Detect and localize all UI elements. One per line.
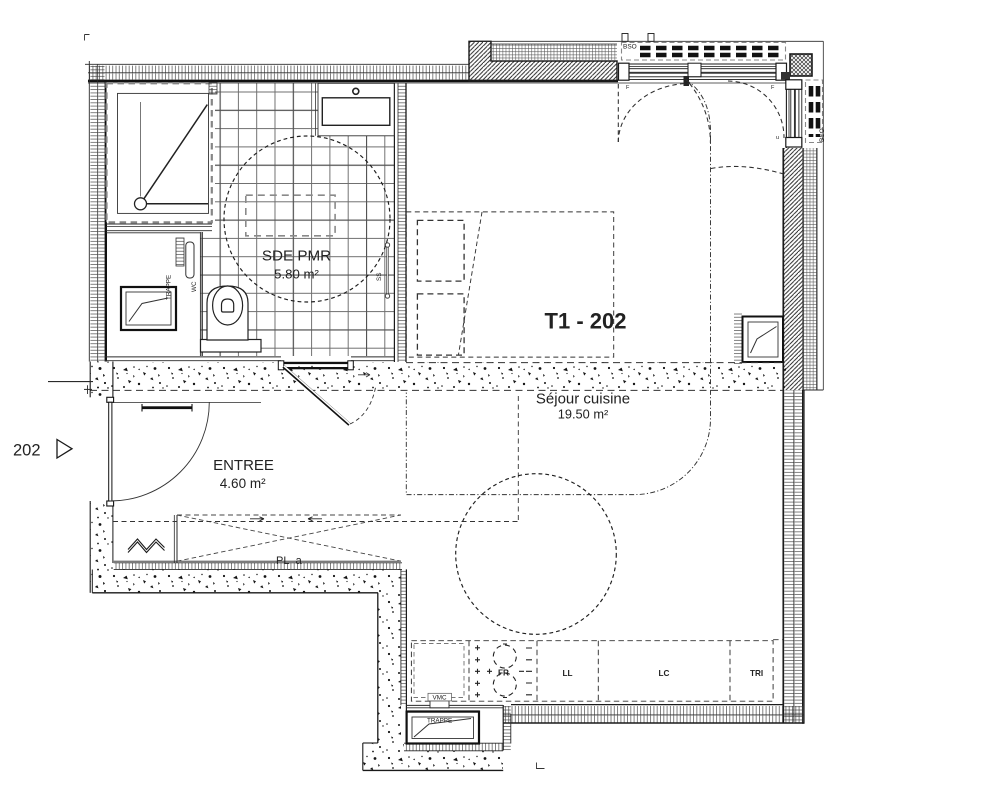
- svg-text:ENTREE: ENTREE: [213, 457, 274, 474]
- svg-text:19.50 m²: 19.50 m²: [558, 407, 609, 422]
- svg-text:PL a: PL a: [276, 555, 303, 567]
- svg-text:u: u: [776, 135, 779, 141]
- svg-text:VMC: VMC: [433, 695, 447, 702]
- svg-text:LL: LL: [563, 669, 573, 678]
- svg-text:5.80 m²: 5.80 m²: [274, 267, 319, 282]
- svg-text:WC: WC: [191, 281, 198, 292]
- svg-text:LC: LC: [659, 669, 670, 678]
- svg-text:TRAPPE: TRAPPE: [166, 275, 173, 300]
- svg-text:4.60 m²: 4.60 m²: [220, 476, 266, 491]
- svg-text:BSO: BSO: [819, 128, 826, 142]
- svg-text:T1 - 202: T1 - 202: [545, 309, 627, 334]
- svg-text:BSO: BSO: [623, 44, 637, 51]
- svg-text:SDE PMR: SDE PMR: [262, 248, 331, 265]
- svg-text:FR: FR: [498, 669, 509, 678]
- svg-text:202: 202: [13, 442, 41, 460]
- svg-text:SS: SS: [376, 273, 383, 281]
- svg-text:TRI: TRI: [750, 669, 763, 678]
- svg-text:Séjour cuisine: Séjour cuisine: [536, 391, 630, 408]
- svg-text:TRAPPE: TRAPPE: [427, 718, 452, 725]
